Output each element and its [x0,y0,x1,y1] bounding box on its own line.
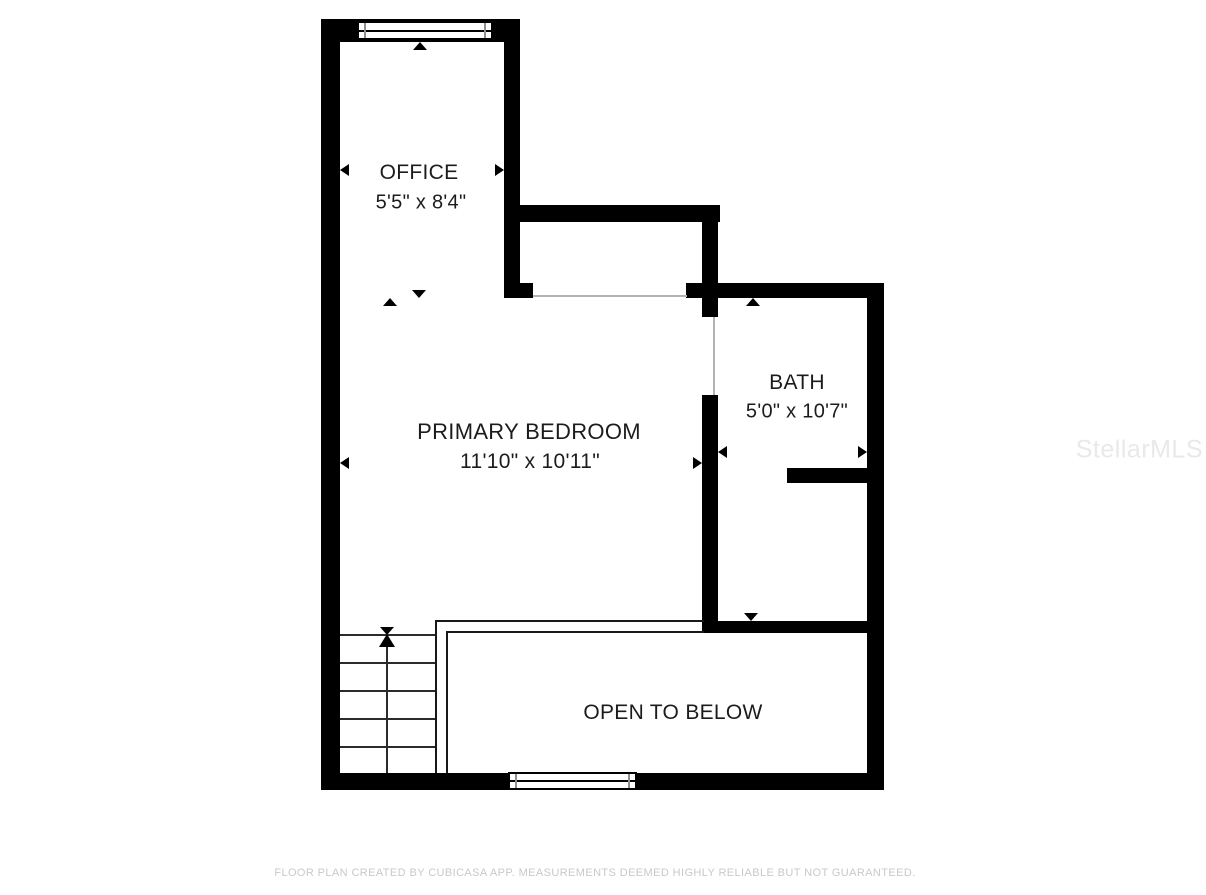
window-bottom [508,772,637,790]
stellar-mls-watermark: StellarMLS [1076,436,1203,465]
primary-bedroom-room-dimensions: 11'10" x 10'11" [460,450,600,474]
bath-room-dimensions: 5'0" x 10'7" [746,401,848,424]
bath-depth-arrow-bottom-icon [744,613,758,621]
wall-bedroom-bath-lower [702,395,718,633]
wall-bedroom-bath-upper [702,222,718,317]
stair-direction-line [386,645,388,773]
open-to-below-outline-left-outer [435,620,437,773]
stairs-up-arrow-icon [379,634,395,647]
open-to-below-label: OPEN TO BELOW [583,701,762,725]
bath-width-arrow-right-icon [858,446,867,458]
open-to-below-outline-top-inner [446,631,704,633]
wall-office-right [504,19,520,222]
office-depth-arrow-bottom-icon [412,290,426,298]
wall-bath-top [686,283,883,298]
office-room-dimensions: 5'5" x 8'4" [376,192,467,215]
wall-exterior-right [867,283,884,790]
office-width-arrow-left-icon [340,164,349,176]
primary-bedroom-room-label: PRIMARY BEDROOM [417,419,641,445]
window-frame-tick [364,23,366,38]
office-depth-arrow-top-icon [413,42,427,50]
bath-door-opening-line [713,317,715,395]
window-pane-line [359,30,491,32]
window-frame-tick [628,774,630,788]
wall-bath-interior-stub [787,468,883,483]
open-to-below-outline-left-inner [446,631,448,773]
bedroom-width-arrow-left-icon [340,457,349,469]
bath-room-label: BATH [769,371,825,395]
wall-bath-bottom [702,621,883,633]
wall-exterior-left [321,19,340,790]
window-pane-line [510,780,635,782]
closet-opening-line [533,295,687,297]
window-frame-tick [515,774,517,788]
wall-closet-top [504,205,720,222]
bedroom-depth-arrow-bottom-icon [380,627,394,635]
floor-plan-canvas: OFFICE 5'5" x 8'4" PRIMARY BEDROOM 11'10… [0,0,1206,895]
footer-disclaimer: FLOOR PLAN CREATED BY CUBICASA APP. MEAS… [274,867,915,879]
open-to-below-outline-top-outer [435,620,704,622]
office-room-label: OFFICE [380,161,459,185]
bedroom-width-arrow-right-icon [693,457,702,469]
window-top [357,21,493,40]
window-frame-tick [484,23,486,38]
bath-depth-arrow-top-icon [746,298,760,306]
bath-width-arrow-left-icon [718,446,727,458]
office-width-arrow-right-icon [495,164,504,176]
bedroom-depth-arrow-top-icon [383,298,397,306]
wall-closet-stub-left [504,283,533,298]
